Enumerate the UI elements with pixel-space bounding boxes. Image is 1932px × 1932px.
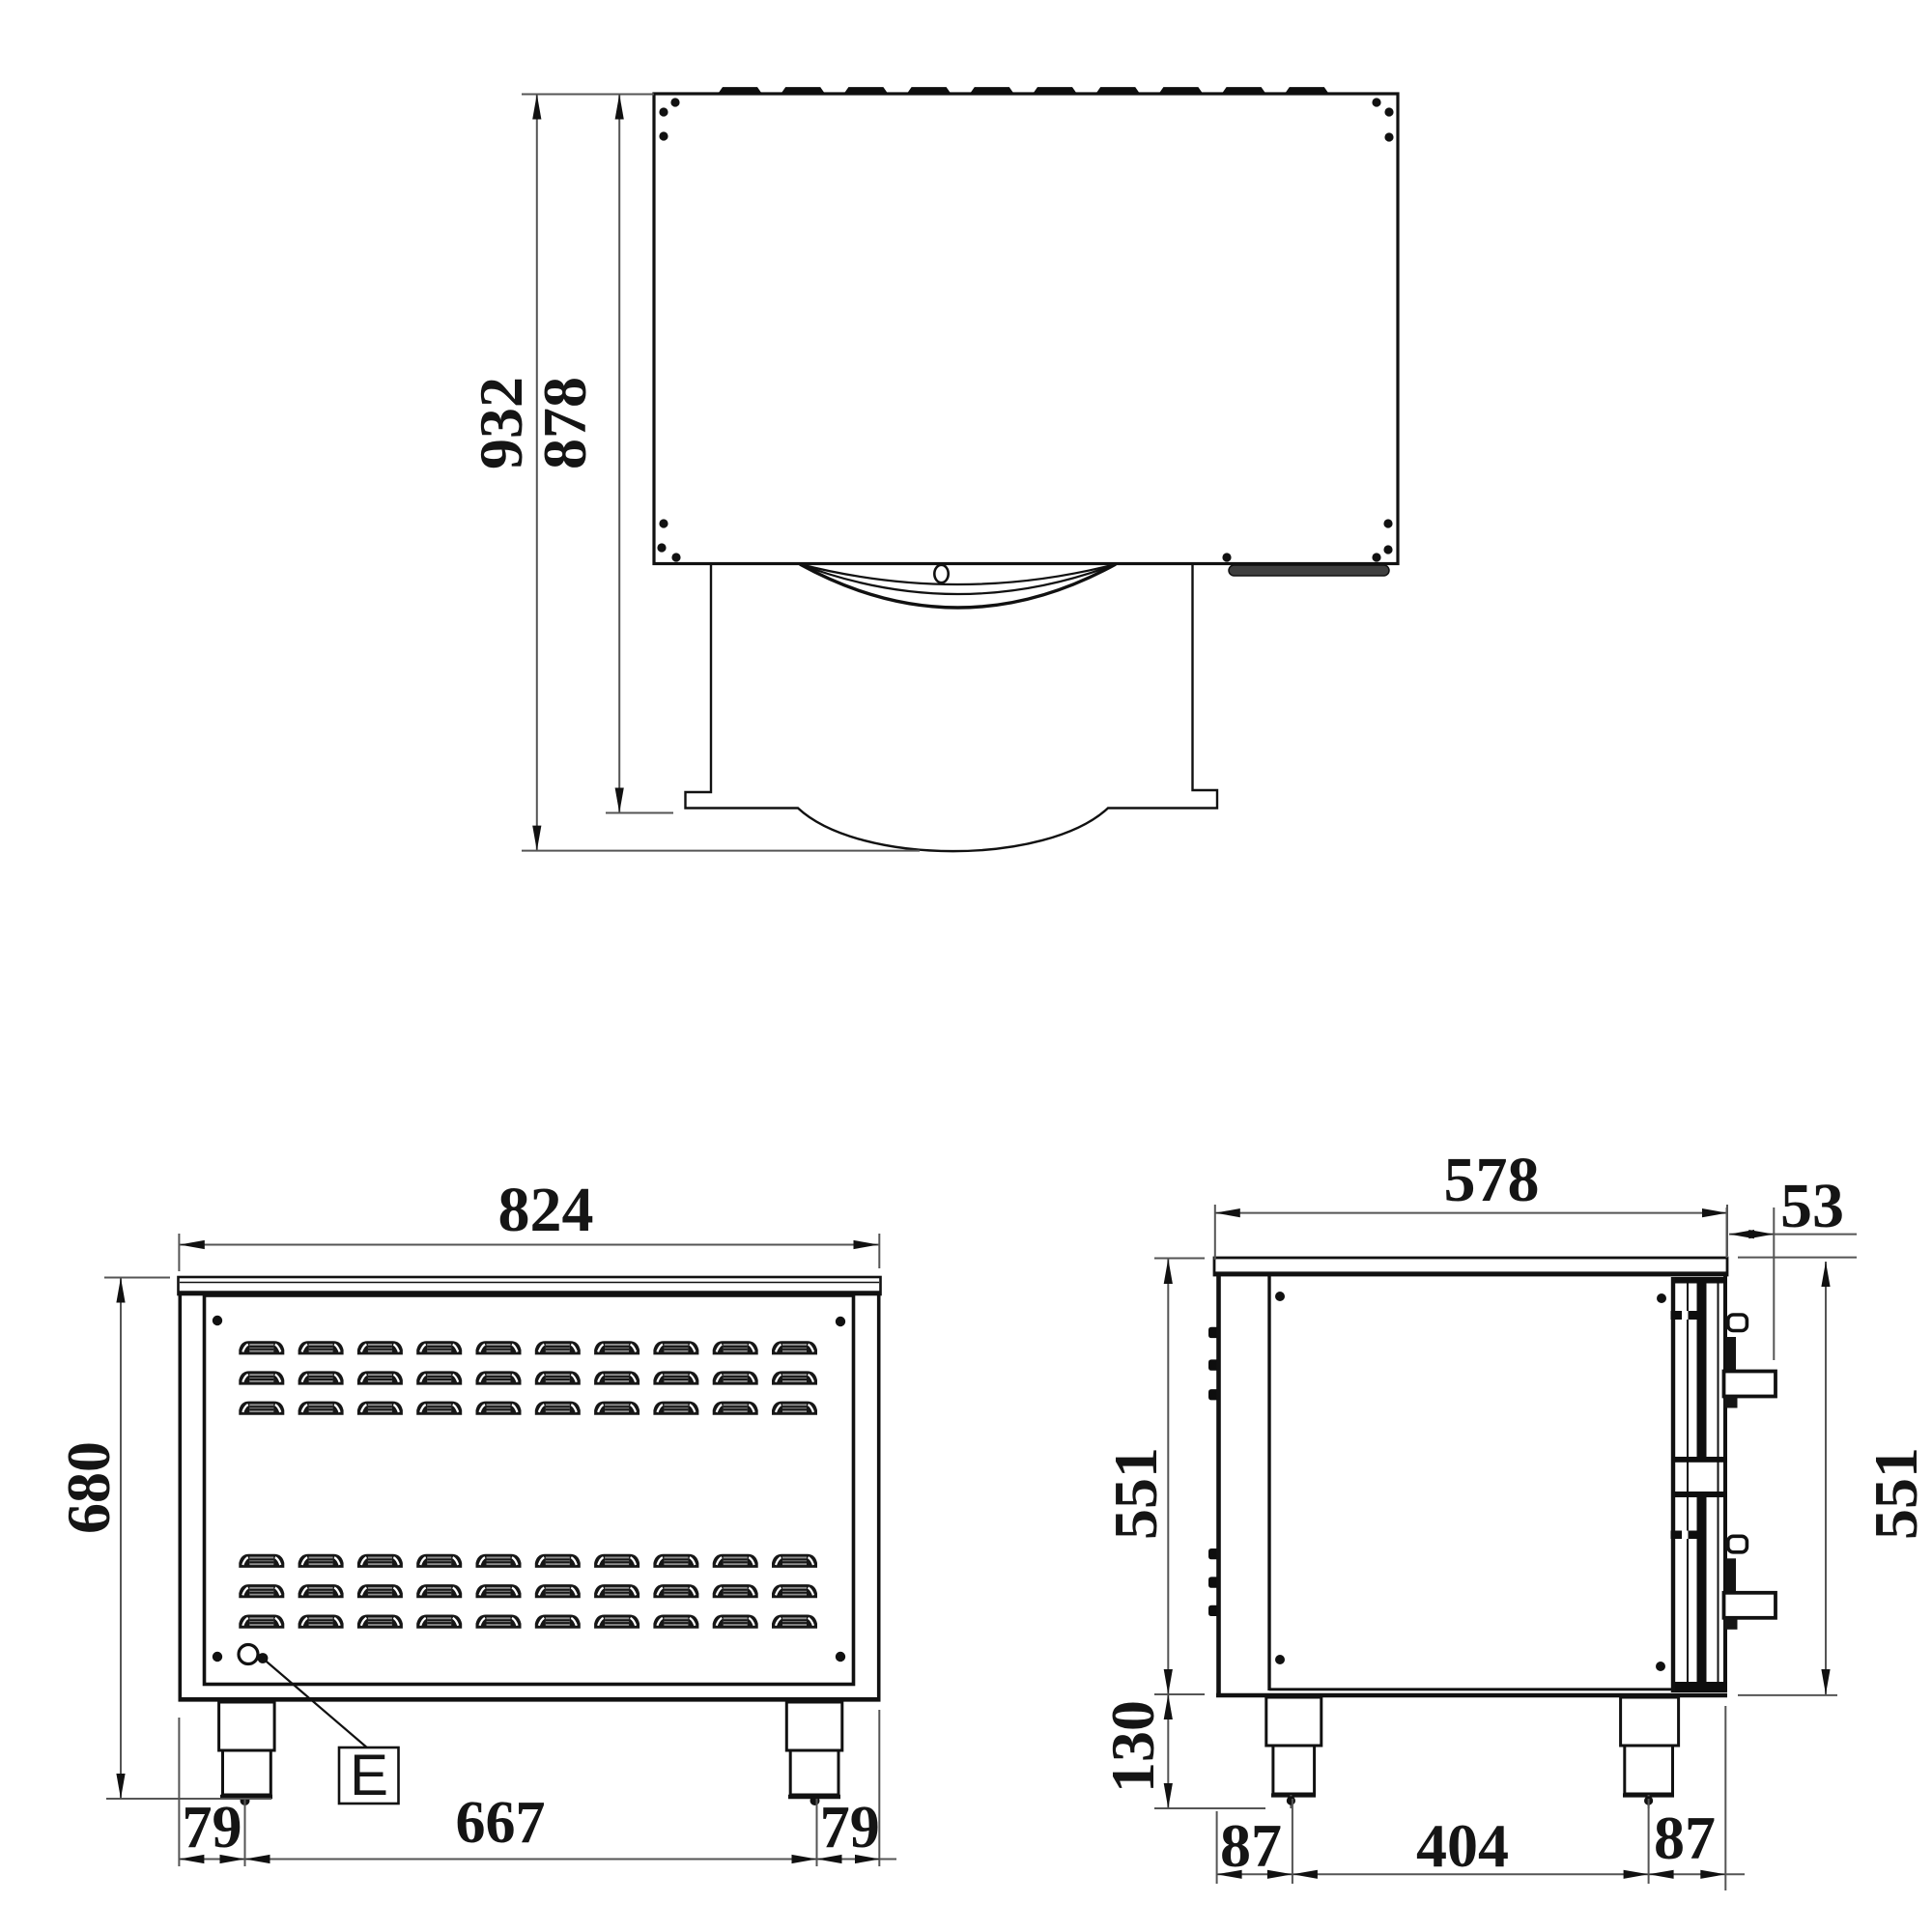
svg-text:551: 551 (1861, 1447, 1930, 1540)
svg-text:79: 79 (820, 1795, 880, 1861)
svg-text:578: 578 (1444, 1145, 1540, 1215)
svg-text:87: 87 (1654, 1804, 1716, 1872)
svg-text:53: 53 (1780, 1171, 1844, 1241)
svg-text:87: 87 (1220, 1811, 1282, 1880)
svg-text:130: 130 (1098, 1700, 1167, 1793)
svg-text:680: 680 (54, 1441, 123, 1534)
svg-text:932: 932 (467, 377, 535, 469)
svg-text:E: E (350, 1743, 388, 1807)
svg-text:878: 878 (530, 377, 599, 469)
svg-text:824: 824 (498, 1175, 594, 1245)
svg-text:551: 551 (1101, 1447, 1170, 1540)
svg-text:79: 79 (183, 1795, 242, 1861)
svg-text:404: 404 (1416, 1811, 1509, 1880)
svg-text:667: 667 (456, 1790, 546, 1856)
